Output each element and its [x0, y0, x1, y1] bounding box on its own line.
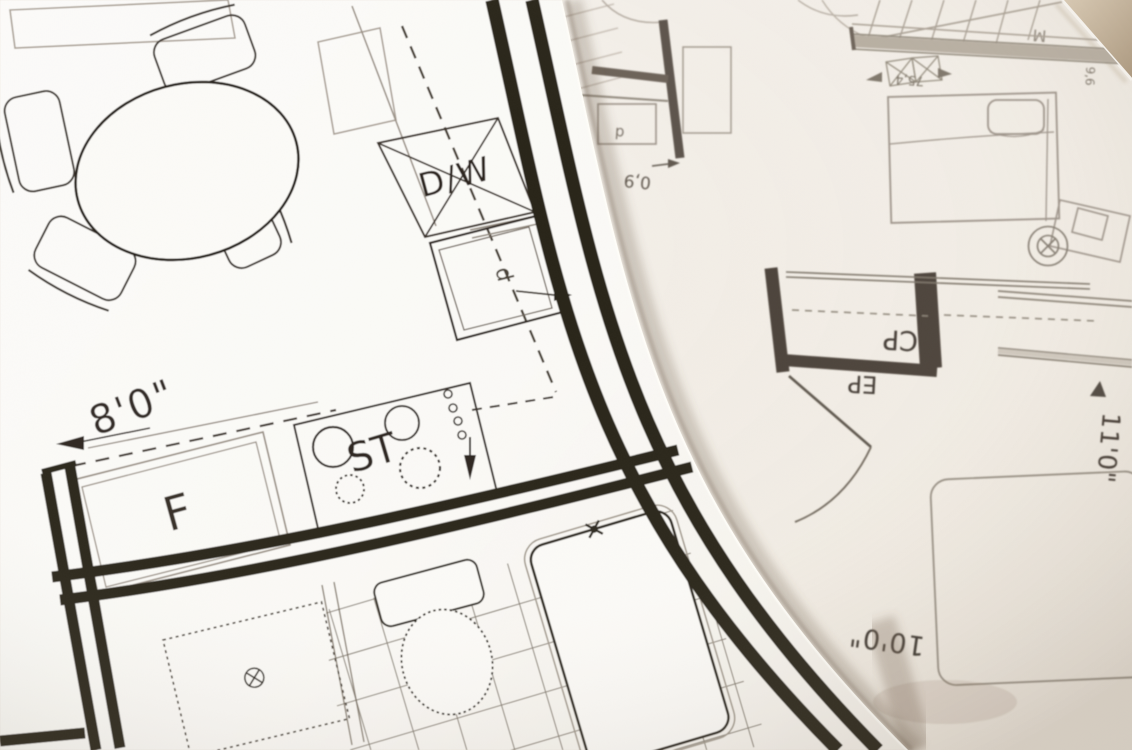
grain-overlay — [0, 0, 1132, 750]
blueprint-photo: d 0,9 M O 75,4 — [0, 0, 1132, 750]
blueprint-scene: d 0,9 M O 75,4 — [0, 0, 1132, 750]
